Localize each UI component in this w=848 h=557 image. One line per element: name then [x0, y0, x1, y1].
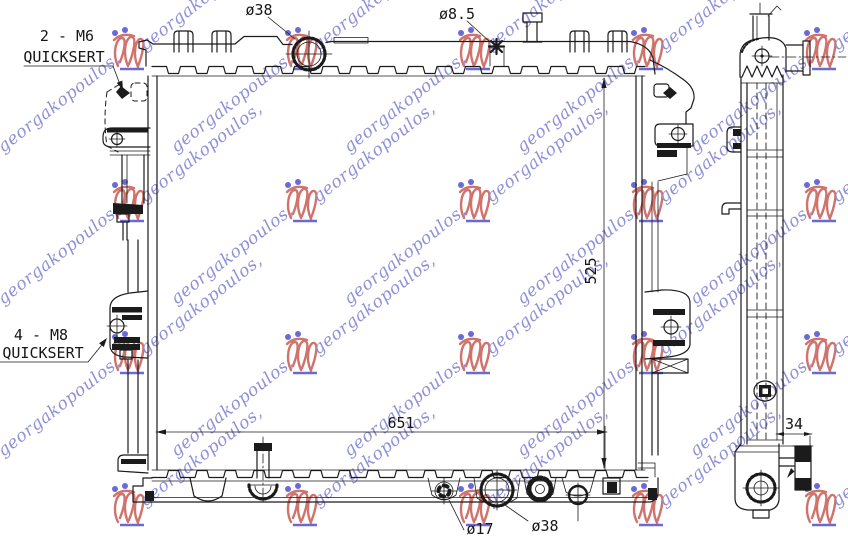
leader-mount-hole: [467, 21, 490, 42]
label-outlet-dia: ø38: [531, 517, 558, 535]
overflow-cap: [523, 13, 542, 42]
side-view: [722, 3, 846, 518]
bracket-upper-left: [103, 128, 150, 292]
label-filler-dia: ø38: [245, 1, 272, 19]
outlet-pipe-front: [477, 470, 517, 510]
end-block: [648, 488, 657, 500]
side-hook-upper: [727, 127, 741, 152]
label-insert-top-qty: 2 - M6: [40, 27, 94, 45]
core-outline: [148, 76, 645, 470]
square-port: [603, 478, 620, 494]
label-core-depth: 34: [785, 415, 803, 433]
label-drain-dia: ø17: [466, 520, 493, 538]
overflow-tube: [750, 3, 781, 40]
mount-hole: [489, 39, 504, 66]
oil-cooler-fitting: [249, 437, 277, 505]
side-bolt-slot: [754, 381, 776, 401]
leader-filler-dia: [268, 17, 295, 39]
bracket-lower-right: [638, 290, 690, 477]
leader-outlet-dia: [505, 505, 528, 521]
drain-plug: [431, 478, 457, 504]
label-mount-hole-dia: ø8.5: [439, 5, 475, 23]
labels: 2 - M6 QUICKSERT 4 - M8 QUICKSERT ø38 ø8…: [2, 1, 803, 538]
side-hook-mid: [722, 203, 741, 214]
bottom-fin-strip: [152, 471, 648, 478]
bottom-tank: [133, 437, 658, 521]
insert-target-top-left: [105, 83, 147, 152]
label-insert-bottom-type: QUICKSERT: [2, 344, 83, 362]
top-fin-strip: [152, 67, 645, 74]
side-hose-outlet: [770, 41, 846, 75]
foot-bottom-left: [118, 455, 148, 473]
side-bottom-tank: [735, 444, 795, 518]
top-tank: [139, 13, 655, 78]
label-core-height: 525: [582, 257, 600, 284]
leader-insert-top: [24, 66, 123, 90]
leader-drain-dia: [449, 500, 464, 530]
drawing-svg: 2 - M6 QUICKSERT 4 - M8 QUICKSERT ø38 ø8…: [0, 0, 848, 557]
bracket-lower-left: [107, 291, 148, 453]
side-outlet-elbow: [779, 446, 813, 490]
label-insert-bottom-qty: 4 - M8: [14, 326, 68, 344]
radiator-technical-drawing: georgakopoulos, georgakopoulos, georgako…: [0, 0, 848, 557]
label-insert-top-type: QUICKSERT: [23, 48, 104, 66]
dimension-651: [156, 426, 607, 470]
dimension-525: [601, 78, 606, 468]
bracket-upper-right: [650, 60, 694, 292]
label-core-width: 651: [387, 414, 414, 432]
dimension-34: [776, 432, 812, 446]
